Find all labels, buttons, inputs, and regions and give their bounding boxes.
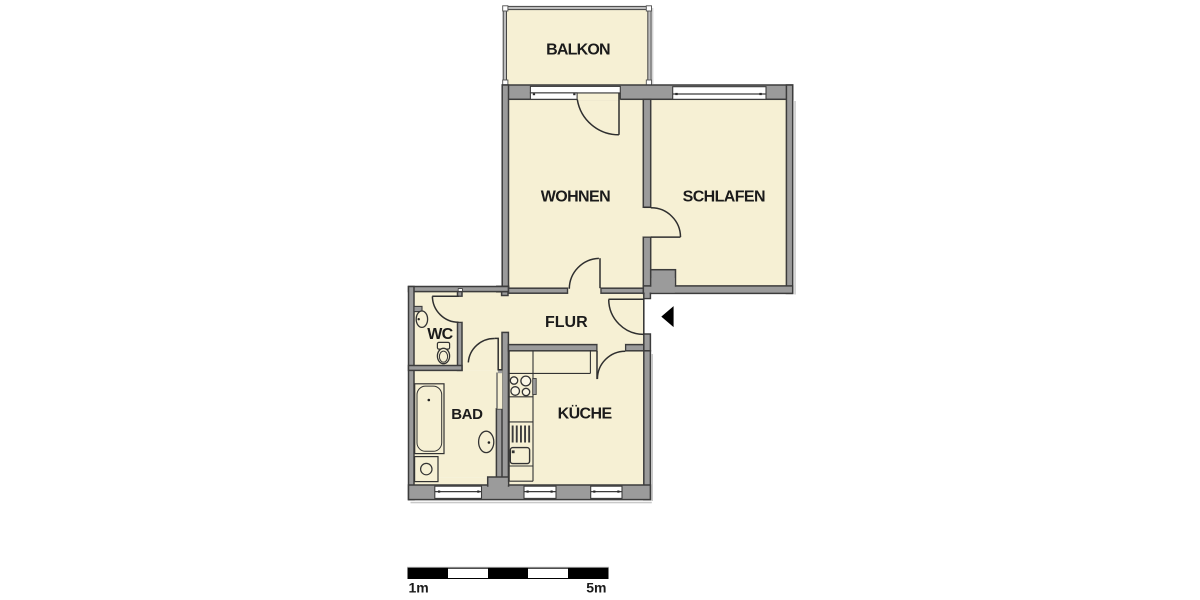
- svg-text:FLUR: FLUR: [545, 314, 588, 331]
- svg-text:BALKON: BALKON: [546, 42, 610, 59]
- svg-text:1m: 1m: [409, 579, 429, 595]
- svg-text:WC: WC: [427, 326, 453, 343]
- svg-text:WOHNEN: WOHNEN: [541, 189, 610, 206]
- svg-text:SCHLAFEN: SCHLAFEN: [683, 189, 765, 206]
- svg-text:5m: 5m: [586, 579, 606, 595]
- svg-text:BAD: BAD: [451, 406, 483, 423]
- svg-text:KÜCHE: KÜCHE: [558, 403, 613, 422]
